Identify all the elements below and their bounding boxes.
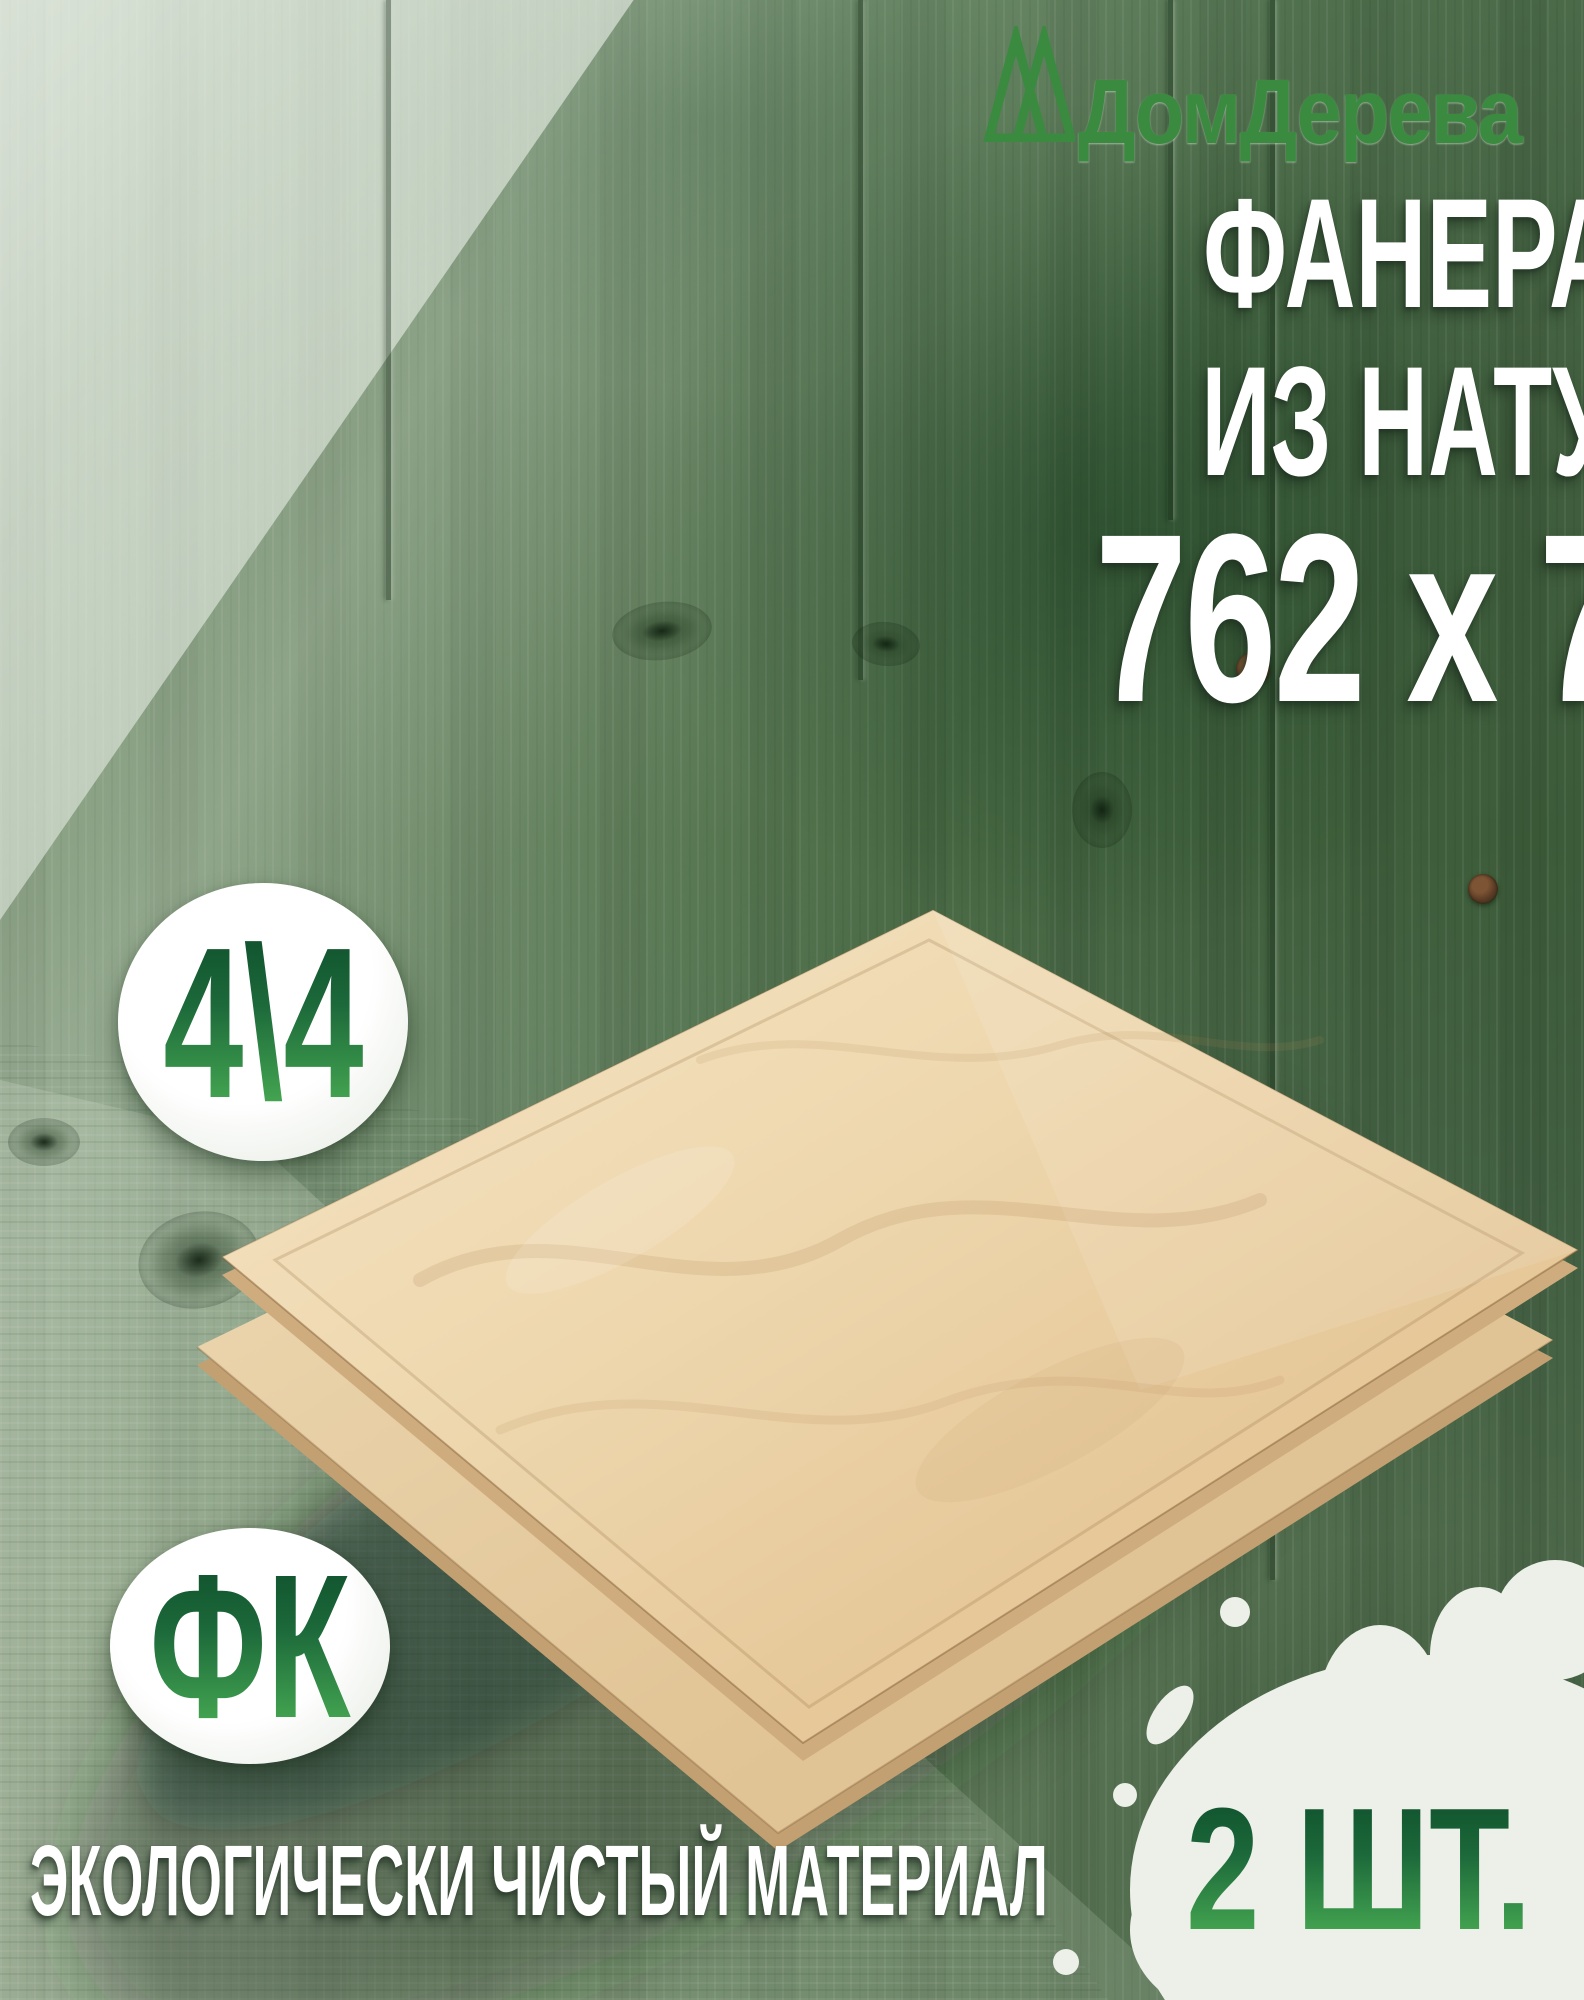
eco-material-label: ЭКОЛОГИЧЕСКИ ЧИСТЫЙ МАТЕРИАЛ xyxy=(30,1826,1048,1936)
quantity-label: 2 ШТ. xyxy=(1186,1782,1532,1956)
product-banner: 4\4 ФК 2 ШТ. ДомДерева xyxy=(0,0,1584,2000)
mountain-triangles-icon xyxy=(983,26,1075,142)
brand-logo: ДомДерева xyxy=(978,20,1568,145)
brand-logo-text: ДомДерева xyxy=(1078,66,1521,158)
